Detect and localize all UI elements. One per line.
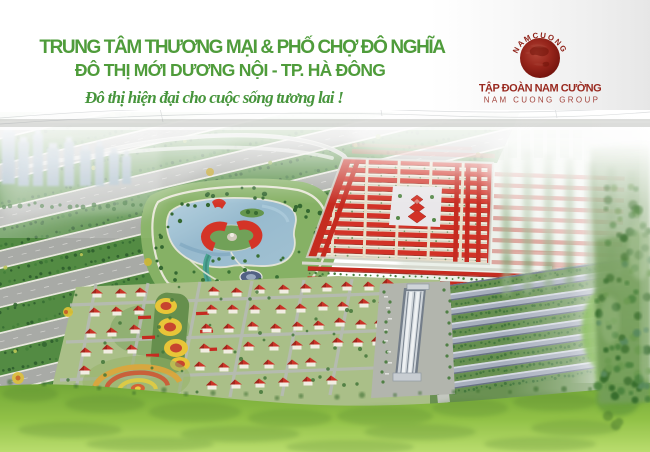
svg-text:TẬP ĐOÀN NAM CƯỜNG: TẬP ĐOÀN NAM CƯỜNG [479, 82, 601, 95]
svg-text:Đô thị hiện đại cho cuộc sống: Đô thị hiện đại cho cuộc sống tương lai … [84, 88, 343, 107]
svg-text:ĐÔ THỊ MỚI DƯƠNG NỘI - TP. HÀ: ĐÔ THỊ MỚI DƯƠNG NỘI - TP. HÀ ĐÔNG [75, 59, 385, 80]
svg-text:TRUNG TÂM THƯƠNG MẠI & PHỐ CHỢ: TRUNG TÂM THƯƠNG MẠI & PHỐ CHỢ ĐÔ NGHĨA [39, 36, 446, 58]
svg-text:NAM CUONG GROUP: NAM CUONG GROUP [484, 96, 601, 105]
